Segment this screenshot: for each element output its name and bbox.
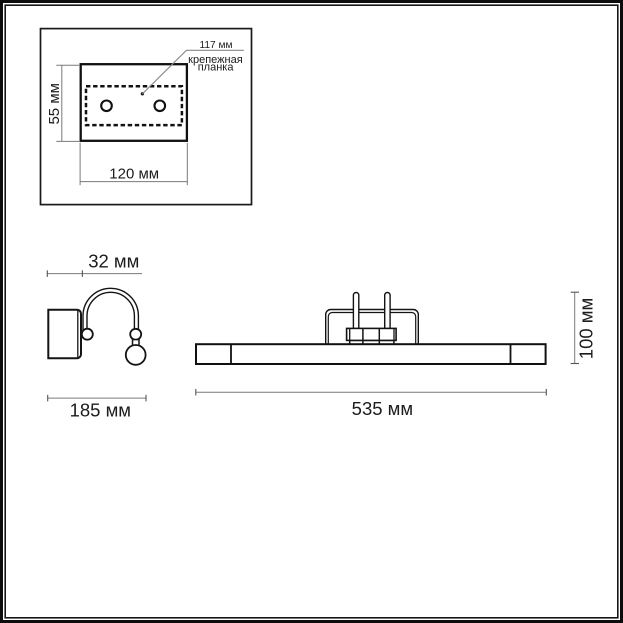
svg-text:117 мм: 117 мм [199,40,232,51]
svg-text:535 мм: 535 мм [352,398,413,419]
svg-text:100 мм: 100 мм [575,298,596,359]
svg-text:120 мм: 120 мм [109,165,159,182]
svg-text:планка: планка [198,62,235,74]
svg-text:55 мм: 55 мм [46,83,63,124]
svg-text:32 мм: 32 мм [88,250,139,271]
svg-text:185 мм: 185 мм [70,400,131,421]
